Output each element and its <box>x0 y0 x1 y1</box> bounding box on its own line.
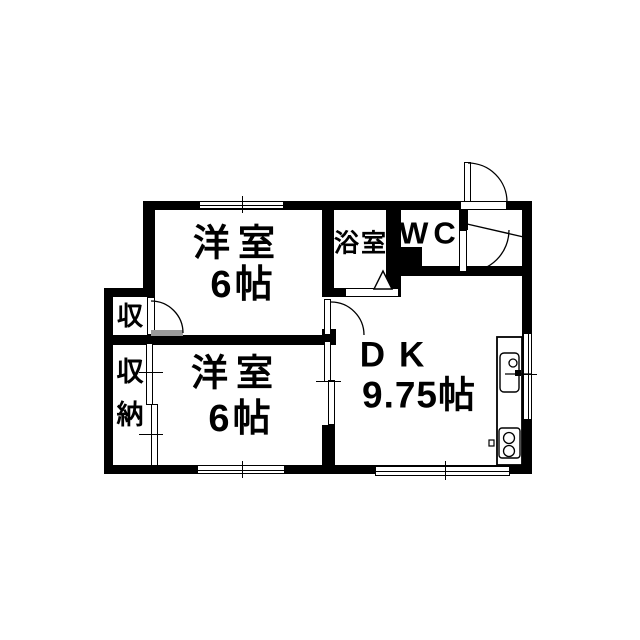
faucet-icon <box>509 359 517 367</box>
stove-knob <box>489 440 494 446</box>
entry-door-arc <box>468 163 507 202</box>
closet-small-label: 収 <box>117 303 143 329</box>
west-room2-label: 洋室 <box>191 355 281 392</box>
wc-door-arc <box>467 230 509 272</box>
dk-size: 9.75帖 <box>362 377 476 414</box>
floorplan-canvas: 洋室 6帖 洋室 6帖 浴室 WC DK 9.75帖 収 収納 <box>0 0 640 640</box>
west-room1-label: 洋室 <box>193 225 283 262</box>
toilet-label: WC <box>399 218 461 249</box>
closet-label: 収納 <box>114 357 141 443</box>
west-room1-size: 6帖 <box>210 266 275 304</box>
fixture-overlay <box>0 0 640 640</box>
burner-icon <box>504 446 515 457</box>
west-room1-door-arc <box>331 302 364 335</box>
west-room2-size: 6帖 <box>208 400 273 438</box>
genkan-step-line <box>467 224 528 238</box>
dk-label: DK <box>360 338 439 373</box>
bath-folding-door-icon <box>374 271 392 289</box>
closet-small-door-arc <box>151 301 183 333</box>
faucet-valve <box>515 370 521 376</box>
bathroom-label: 浴室 <box>334 232 388 257</box>
burner-icon <box>504 433 515 444</box>
